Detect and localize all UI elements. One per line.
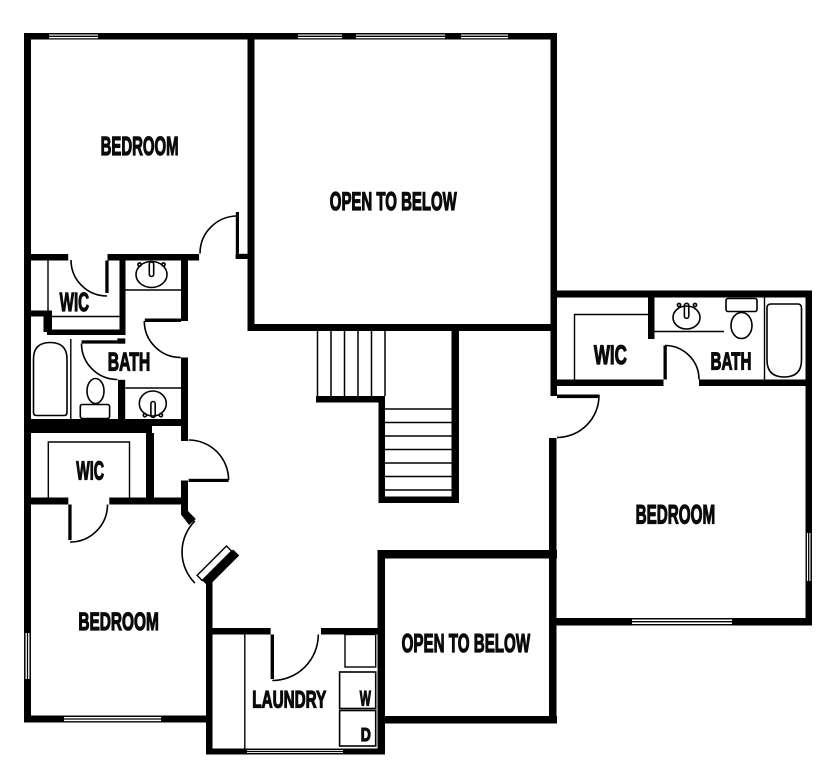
svg-text:LAUNDRY: LAUNDRY bbox=[252, 687, 326, 714]
svg-text:WIC: WIC bbox=[60, 287, 90, 317]
svg-text:BEDROOM: BEDROOM bbox=[636, 500, 716, 530]
svg-text:BATH: BATH bbox=[711, 348, 752, 375]
svg-text:OPEN TO BELOW: OPEN TO BELOW bbox=[330, 188, 457, 216]
svg-text:OPEN TO BELOW: OPEN TO BELOW bbox=[402, 628, 531, 658]
svg-text:WIC: WIC bbox=[76, 456, 104, 486]
svg-text:BEDROOM: BEDROOM bbox=[101, 131, 179, 161]
svg-text:WIC: WIC bbox=[594, 340, 627, 370]
svg-text:BEDROOM: BEDROOM bbox=[78, 608, 159, 636]
svg-text:BATH: BATH bbox=[108, 348, 151, 376]
svg-text:D: D bbox=[361, 724, 371, 745]
svg-text:W: W bbox=[360, 688, 371, 711]
